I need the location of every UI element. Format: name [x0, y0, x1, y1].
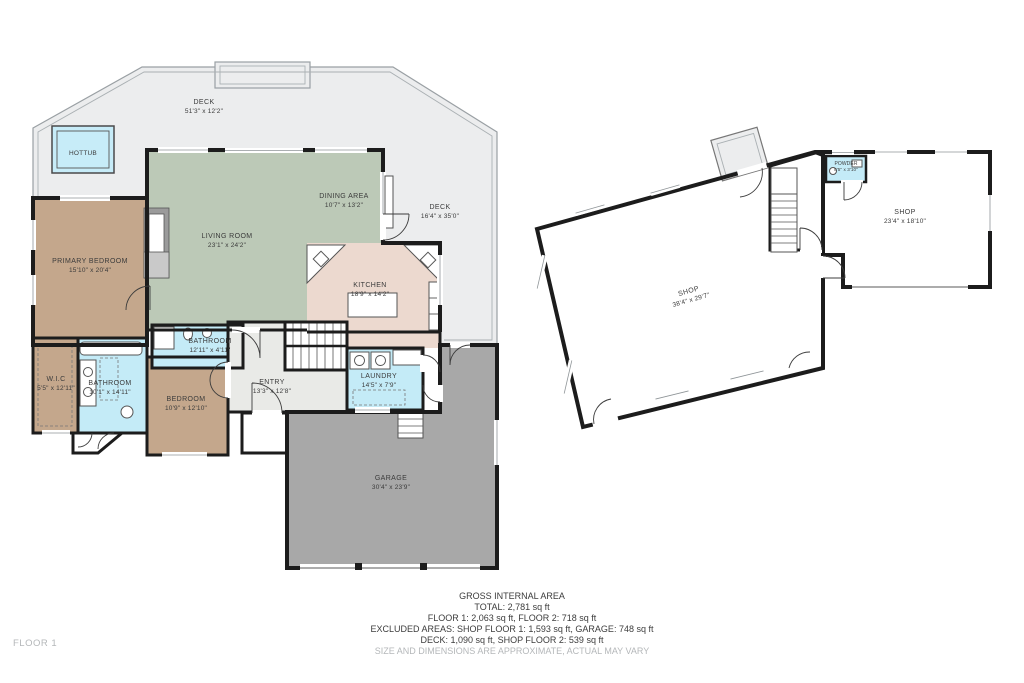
- shop-windows: [534, 149, 993, 402]
- svg-text:10'7" x 13'2": 10'7" x 13'2": [325, 202, 364, 209]
- svg-text:14'5" x 7'9": 14'5" x 7'9": [362, 382, 397, 389]
- svg-text:23'1" x 24'2": 23'1" x 24'2": [208, 242, 247, 249]
- svg-text:30'4" x 23'9": 30'4" x 23'9": [372, 484, 411, 491]
- svg-text:16'4" x 35'0": 16'4" x 35'0": [421, 213, 460, 220]
- deck-top-label: DECK: [193, 99, 214, 106]
- svg-text:18'9" x 14'2": 18'9" x 14'2": [351, 291, 390, 298]
- shop-stairs: [771, 168, 797, 252]
- shop-second-label: SHOP: [894, 209, 915, 216]
- svg-text:51'3" x 12'2": 51'3" x 12'2": [185, 108, 224, 115]
- entry-label: ENTRY: [259, 379, 285, 386]
- vestibule-area: [73, 433, 122, 453]
- area-floors: FLOOR 1: 2,063 sq ft, FLOOR 2: 718 sq ft: [0, 613, 1024, 624]
- svg-text:10'1" x 14'11": 10'1" x 14'11": [89, 389, 131, 396]
- deck-right-label: DECK: [429, 204, 450, 211]
- floor-plan-canvas: DECK 51'3" x 12'2" HOTTUB DECK 16'4" x 3…: [0, 0, 1024, 683]
- svg-text:12'11" x 4'11": 12'11" x 4'11": [189, 347, 231, 354]
- garage-stairs: [398, 412, 423, 438]
- svg-text:15'10" x 20'4": 15'10" x 20'4": [69, 267, 112, 274]
- kitchen-label: KITCHEN: [353, 282, 387, 289]
- svg-text:5'5" x 12'11": 5'5" x 12'11": [37, 385, 75, 392]
- area-total: TOTAL: 2,781 sq ft: [0, 602, 1024, 613]
- area-excluded-2: DECK: 1,090 sq ft, SHOP FLOOR 2: 539 sq …: [0, 635, 1024, 646]
- svg-text:23'4" x 18'10": 23'4" x 18'10": [884, 218, 927, 225]
- svg-text:10'9" x 12'10": 10'9" x 12'10": [165, 405, 208, 412]
- area-summary-title: GROSS INTERNAL AREA: [0, 591, 1024, 602]
- svg-text:13'3" x 12'8": 13'3" x 12'8": [253, 388, 292, 395]
- front-stoop: [242, 413, 287, 453]
- bedroom-label: BEDROOM: [167, 396, 206, 403]
- laundry-label: LAUNDRY: [361, 373, 397, 380]
- primary-bedroom-label: PRIMARY BEDROOM: [52, 258, 128, 265]
- floor-number-label: FLOOR 1: [13, 638, 57, 649]
- primary-bathroom-label: BATHROOM: [88, 380, 131, 387]
- living-room-label: LIVING ROOM: [201, 233, 252, 240]
- hottub-label: HOTTUB: [69, 150, 97, 157]
- size-disclaimer: SIZE AND DIMENSIONS ARE APPROXIMATE, ACT…: [0, 646, 1024, 657]
- dining-area-label: DINING AREA: [319, 193, 369, 200]
- floor-plan-page: DECK 51'3" x 12'2" HOTTUB DECK 16'4" x 3…: [0, 0, 1024, 683]
- area-summary: GROSS INTERNAL AREA TOTAL: 2,781 sq ft F…: [0, 591, 1024, 657]
- svg-text:8'5" x 3'10": 8'5" x 3'10": [834, 167, 858, 172]
- bathroom2-label: BATHROOM: [188, 338, 231, 345]
- garage-label: GARAGE: [375, 475, 407, 482]
- area-excluded-1: EXCLUDED AREAS: SHOP FLOOR 1: 1,593 sq f…: [0, 624, 1024, 635]
- wic-label: W.I.C: [46, 376, 65, 383]
